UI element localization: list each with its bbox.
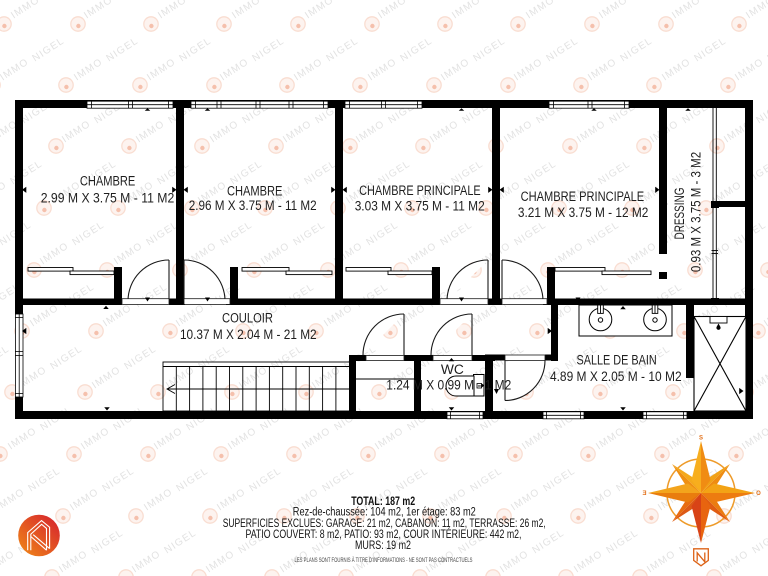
svg-text:NIGEL: NIGEL <box>281 281 317 310</box>
svg-text:IMMO: IMMO <box>509 487 542 514</box>
svg-text:IMMO: IMMO <box>373 426 406 453</box>
svg-text:IMMO: IMMO <box>575 119 608 146</box>
svg-text:NIGEL: NIGEL <box>49 343 85 372</box>
svg-text:CHAMBRE PRINCIPALE: CHAMBRE PRINCIPALE <box>521 189 645 204</box>
svg-text:IMMO: IMMO <box>553 241 586 268</box>
svg-text:CHAMBRE: CHAMBRE <box>227 184 283 199</box>
svg-text:NIGEL: NIGEL <box>105 35 141 64</box>
svg-text:Rez-de-chaussée: 104 m2, 1er é: Rez-de-chaussée: 104 m2, 1er étage: 83 m… <box>293 507 476 519</box>
svg-text:NIGEL: NIGEL <box>395 465 431 494</box>
svg-text:NIGEL: NIGEL <box>123 343 159 372</box>
svg-text:WC: WC <box>441 362 464 377</box>
svg-text:IMMO: IMMO <box>57 549 90 576</box>
svg-text:2.96 M X 3.75 M - 11 M2: 2.96 M X 3.75 M - 11 M2 <box>189 198 317 213</box>
svg-text:IMMO: IMMO <box>156 0 189 21</box>
svg-text:IMMO: IMMO <box>28 303 61 330</box>
svg-text:NIGEL: NIGEL <box>27 465 63 494</box>
svg-text:NIGEL: NIGEL <box>557 0 593 2</box>
svg-text:IMMO: IMMO <box>468 303 501 330</box>
svg-text:2.99 M X 3.75 M - 11 M2: 2.99 M X 3.75 M - 11 M2 <box>41 190 175 205</box>
svg-text:NIGEL: NIGEL <box>175 465 211 494</box>
svg-text:NIGEL: NIGEL <box>630 0 666 2</box>
svg-text:NIGEL: NIGEL <box>321 465 357 494</box>
svg-text:IMMO: IMMO <box>406 241 439 268</box>
svg-text:IMMO: IMMO <box>752 365 768 392</box>
svg-text:IMMO: IMMO <box>446 426 479 453</box>
svg-text:NIGEL: NIGEL <box>586 219 622 248</box>
svg-text:NIGEL: NIGEL <box>0 0 5 2</box>
svg-text:NIGEL: NIGEL <box>355 281 391 310</box>
svg-text:IMMO: IMMO <box>300 426 333 453</box>
svg-text:NIGEL: NIGEL <box>0 343 12 372</box>
svg-text:NIGEL: NIGEL <box>145 219 181 248</box>
svg-text:1.24 M X 0.99 M - 1 M2: 1.24 M X 0.99 M - 1 M2 <box>386 377 511 392</box>
svg-text:NIGEL: NIGEL <box>531 527 567 556</box>
svg-text:NIGEL: NIGEL <box>399 35 435 64</box>
svg-text:COULOIR: COULOIR <box>222 310 273 325</box>
svg-text:IMMO: IMMO <box>542 303 575 330</box>
svg-text:10.37 M X 2.04 M - 21 M2: 10.37 M X 2.04 M - 21 M2 <box>180 327 317 342</box>
svg-text:NIGEL: NIGEL <box>483 0 519 2</box>
svg-text:IMMO: IMMO <box>366 57 399 84</box>
svg-text:NIGEL: NIGEL <box>542 465 578 494</box>
svg-text:IMMO: IMMO <box>82 0 115 21</box>
svg-text:IMMO: IMMO <box>660 57 693 84</box>
svg-text:NIGEL: NIGEL <box>409 0 445 2</box>
svg-text:E: E <box>642 491 646 497</box>
svg-text:NIGEL: NIGEL <box>71 219 107 248</box>
svg-text:IMMO: IMMO <box>60 119 93 146</box>
svg-text:IMMO: IMMO <box>259 241 292 268</box>
svg-text:3.21 M X 3.75 M - 12 M2: 3.21 M X 3.75 M - 12 M2 <box>518 205 649 220</box>
svg-text:NIGEL: NIGEL <box>90 527 126 556</box>
svg-text:CHAMBRE PRINCIPALE: CHAMBRE PRINCIPALE <box>359 183 481 198</box>
svg-text:IMMO: IMMO <box>38 241 71 268</box>
svg-text:NIGEL: NIGEL <box>42 0 78 2</box>
svg-text:NIGEL: NIGEL <box>597 158 633 187</box>
svg-text:NIGEL: NIGEL <box>469 465 505 494</box>
svg-text:O: O <box>756 491 761 497</box>
svg-text:IMMO: IMMO <box>376 0 409 21</box>
svg-text:NIGEL: NIGEL <box>605 527 641 556</box>
svg-text:IMMO: IMMO <box>174 303 207 330</box>
svg-text:IMMO: IMMO <box>208 119 241 146</box>
svg-text:NIGEL: NIGEL <box>115 0 151 2</box>
svg-text:NIGEL: NIGEL <box>263 0 299 2</box>
svg-text:NIGEL: NIGEL <box>439 219 475 248</box>
svg-text:NIGEL: NIGEL <box>703 0 739 2</box>
svg-text:NIGEL: NIGEL <box>61 281 97 310</box>
svg-text:NIGEL: NIGEL <box>325 35 361 64</box>
svg-text:LES PLANS SONT FOURNIS À TITRE: LES PLANS SONT FOURNIS À TITRE D'INFORMA… <box>295 557 473 564</box>
svg-text:NIGEL: NIGEL <box>472 35 508 64</box>
svg-text:NIGEL: NIGEL <box>619 35 655 64</box>
svg-text:IMMO: IMMO <box>733 57 766 84</box>
svg-text:IMMO: IMMO <box>498 549 531 576</box>
svg-text:IMMO: IMMO <box>0 57 31 84</box>
svg-text:NIGEL: NIGEL <box>545 35 581 64</box>
svg-text:IMMO: IMMO <box>303 0 336 21</box>
svg-text:IMMO: IMMO <box>744 0 768 21</box>
svg-text:NIGEL: NIGEL <box>523 158 559 187</box>
svg-text:IMMO: IMMO <box>6 426 39 453</box>
svg-text:IMMO: IMMO <box>594 426 627 453</box>
svg-text:IMMO: IMMO <box>218 57 251 84</box>
svg-text:IMMO: IMMO <box>582 487 615 514</box>
svg-text:NIGEL: NIGEL <box>0 404 1 433</box>
svg-text:IMMO: IMMO <box>439 57 472 84</box>
svg-text:IMMO: IMMO <box>215 487 248 514</box>
svg-text:IMMO: IMMO <box>645 549 678 576</box>
svg-text:NIGEL: NIGEL <box>292 219 328 248</box>
svg-text:IMMO: IMMO <box>90 365 123 392</box>
svg-text:IMMO: IMMO <box>9 0 42 21</box>
svg-text:IMMO: IMMO <box>152 426 185 453</box>
svg-text:MURS: 19 m2: MURS: 19 m2 <box>355 540 411 552</box>
svg-text:NIGEL: NIGEL <box>31 35 67 64</box>
svg-text:IMMO: IMMO <box>670 0 703 21</box>
svg-text:NIGEL: NIGEL <box>303 158 339 187</box>
svg-text:IMMO: IMMO <box>626 241 659 268</box>
svg-text:IMMO: IMMO <box>586 57 619 84</box>
svg-text:IMMO: IMMO <box>292 57 325 84</box>
svg-text:NIGEL: NIGEL <box>248 465 284 494</box>
svg-text:NIGEL: NIGEL <box>751 527 768 556</box>
svg-text:NIGEL: NIGEL <box>336 0 372 2</box>
svg-text:NIGEL: NIGEL <box>219 219 255 248</box>
svg-text:SALLE DE BAIN: SALLE DE BAIN <box>577 353 657 368</box>
svg-text:IMMO: IMMO <box>572 549 605 576</box>
svg-text:IMMO: IMMO <box>72 57 105 84</box>
svg-text:NIGEL: NIGEL <box>755 97 768 126</box>
svg-text:IMMO: IMMO <box>145 57 178 84</box>
svg-text:0.93 M X 3.75 M - 3 M2: 0.93 M X 3.75 M - 3 M2 <box>689 152 704 272</box>
svg-text:DRESSING: DRESSING <box>672 188 687 240</box>
svg-text:IMMO: IMMO <box>322 303 355 330</box>
svg-text:IMMO: IMMO <box>502 119 535 146</box>
svg-text:IMMO: IMMO <box>667 426 700 453</box>
svg-text:IMMO: IMMO <box>0 487 27 514</box>
svg-text:IMMO: IMMO <box>134 119 167 146</box>
svg-text:NIGEL: NIGEL <box>615 465 651 494</box>
svg-text:IMMO: IMMO <box>237 365 270 392</box>
svg-text:IMMO: IMMO <box>164 365 197 392</box>
svg-text:IMMO: IMMO <box>512 57 545 84</box>
svg-text:IMMO: IMMO <box>0 549 17 576</box>
svg-text:NIGEL: NIGEL <box>197 343 233 372</box>
svg-text:IMMO: IMMO <box>310 365 343 392</box>
svg-text:NIGEL: NIGEL <box>189 0 225 2</box>
svg-text:NIGEL: NIGEL <box>251 35 287 64</box>
svg-text:NIGEL: NIGEL <box>763 465 768 494</box>
svg-text:IMMO: IMMO <box>68 487 101 514</box>
svg-text:NIGEL: NIGEL <box>693 35 729 64</box>
svg-text:IMMO: IMMO <box>597 0 630 21</box>
svg-text:NIGEL: NIGEL <box>270 343 306 372</box>
svg-text:IMMO: IMMO <box>142 487 175 514</box>
svg-text:IMMO: IMMO <box>450 0 483 21</box>
svg-text:IMMO: IMMO <box>204 549 237 576</box>
svg-text:NIGEL: NIGEL <box>178 35 214 64</box>
svg-text:4.89 M X 2.05 M - 10 M2: 4.89 M X 2.05 M - 10 M2 <box>550 369 682 384</box>
svg-text:IMMO: IMMO <box>740 426 768 453</box>
svg-text:IMMO: IMMO <box>354 119 387 146</box>
svg-text:IMMO: IMMO <box>520 426 553 453</box>
svg-text:CHAMBRE: CHAMBRE <box>80 174 136 189</box>
svg-text:IMMO: IMMO <box>230 0 263 21</box>
svg-text:NIGEL: NIGEL <box>513 219 549 248</box>
svg-text:NIGEL: NIGEL <box>9 158 45 187</box>
svg-text:NIGEL: NIGEL <box>101 465 137 494</box>
svg-text:IMMO: IMMO <box>130 549 163 576</box>
svg-text:IMMO: IMMO <box>428 119 461 146</box>
svg-text:3.03 M X 3.75 M - 11 M2: 3.03 M X 3.75 M - 11 M2 <box>355 199 485 214</box>
svg-text:NIGEL: NIGEL <box>156 158 192 187</box>
svg-text:IMMO: IMMO <box>0 180 9 207</box>
svg-text:IMMO: IMMO <box>112 241 145 268</box>
svg-text:NIGEL: NIGEL <box>365 219 401 248</box>
svg-text:IMMO: IMMO <box>281 119 314 146</box>
svg-text:IMMO: IMMO <box>524 0 557 21</box>
svg-text:NIGEL: NIGEL <box>163 527 199 556</box>
svg-text:IMMO: IMMO <box>718 549 751 576</box>
svg-text:IMMO: IMMO <box>79 426 112 453</box>
svg-text:IMMO: IMMO <box>226 426 259 453</box>
svg-text:S: S <box>699 436 703 442</box>
